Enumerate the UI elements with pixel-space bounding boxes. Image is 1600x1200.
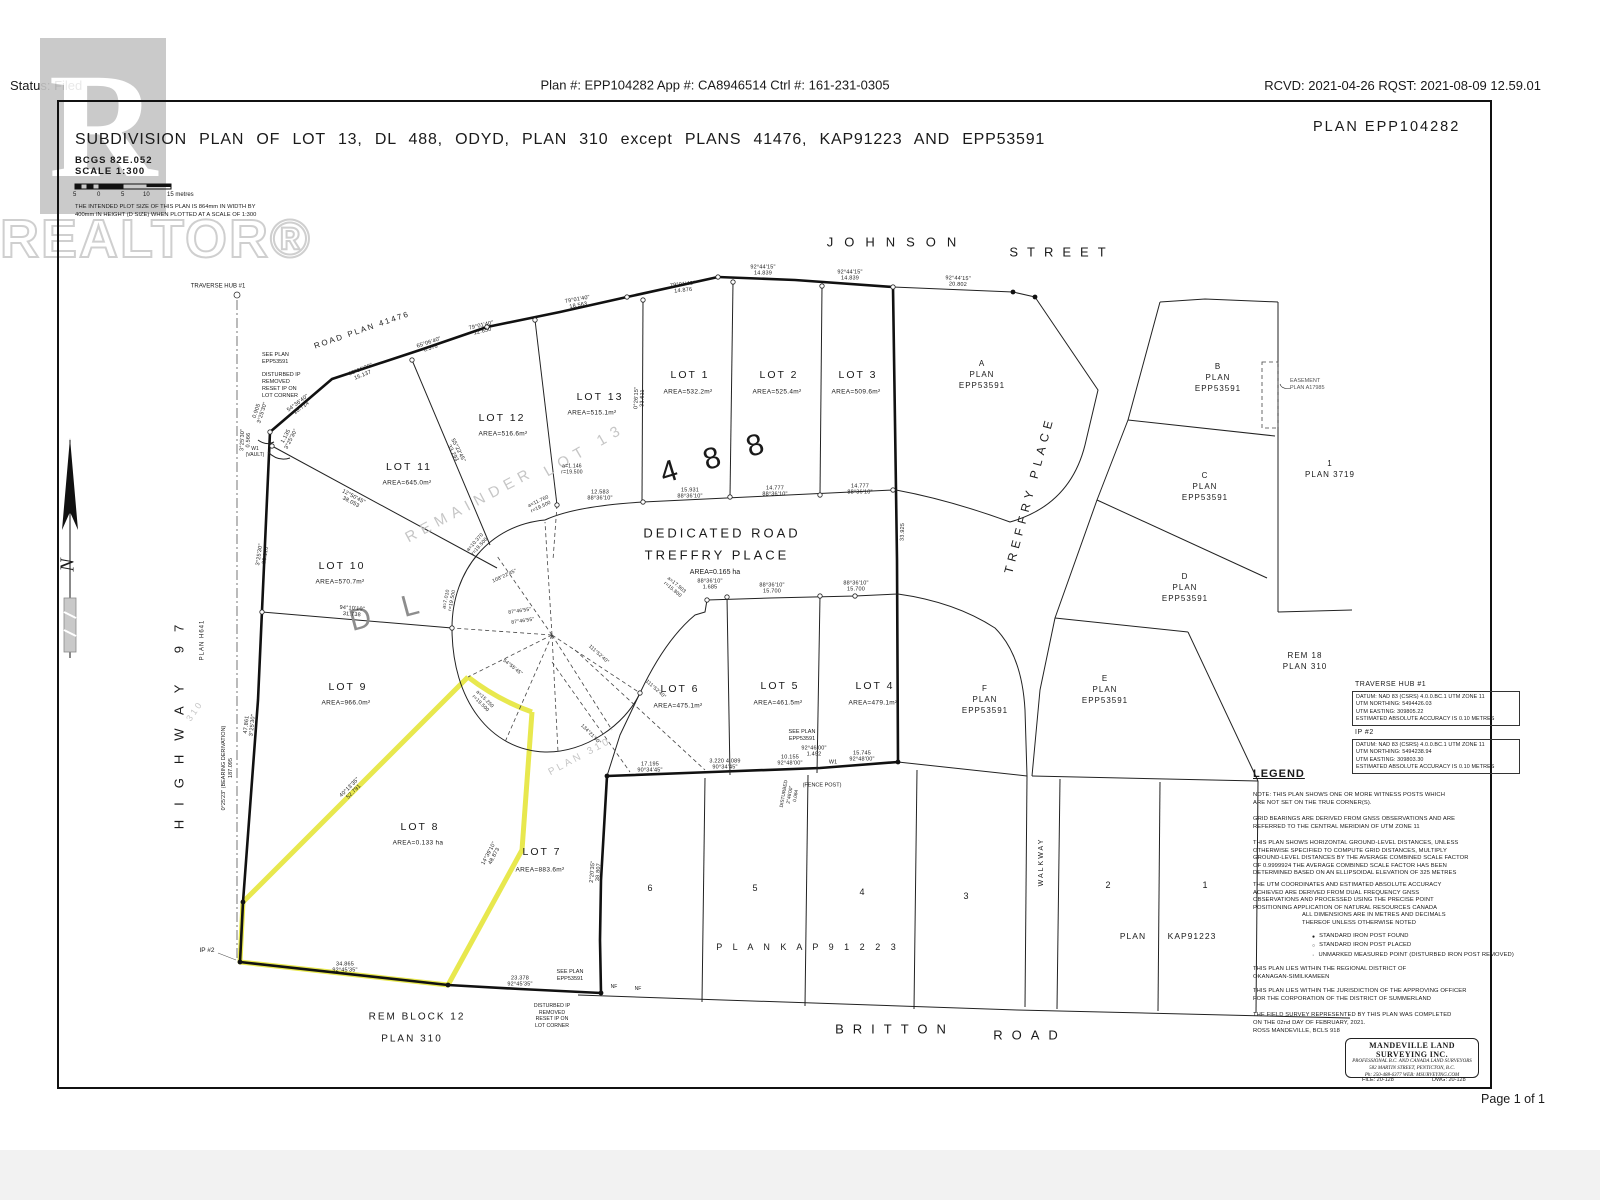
dim-label: a=1.146 r=19.500 (561, 464, 582, 476)
nf-label: NF (635, 986, 642, 992)
subject-boundary (240, 277, 898, 993)
firm-line: 582 MARTIN STREET, PENTICTON, B.C. (1346, 1066, 1478, 1073)
legend-note: THIS PLAN LIES WITHIN THE REGIONAL DISTR… (1253, 966, 1443, 981)
iron-post-placed-icon: ○ (1312, 943, 1315, 950)
lot-area: AREA=570.7m² (316, 578, 365, 585)
easement-label: EASEMENT PLAN A17985 (1290, 378, 1325, 392)
lot-area: AREA=883.6m² (516, 866, 565, 873)
kap-lot-number: 4 (859, 887, 864, 897)
ip-line: DATUM: NAD 83 (CSRS) 4.0.0.BC.1 UTM ZONE… (1356, 742, 1516, 749)
lot8-highlight (240, 677, 532, 985)
legend-symbol: ● STANDARD IRON POST FOUND (1312, 933, 1409, 941)
lot-area: AREA=479.1m² (849, 699, 898, 706)
dim-label: 15.745 92°48'00" (849, 751, 874, 764)
kap-lot-number: 3 (963, 891, 968, 901)
dim-label: 88°36'10" 1.685 (697, 579, 722, 592)
dim-label: 92°46'00" 1.492 (801, 746, 826, 759)
lot-label: LOT 12 (479, 412, 526, 424)
hub-line: UTM EASTING: 309805.22 (1356, 709, 1516, 716)
hub-line: ESTIMATED ABSOLUTE ACCURACY IS 0.10 METR… (1356, 716, 1516, 723)
dim-label: 3°25'30" 0.566 (239, 429, 252, 452)
rem-block-12: REM BLOCK 12 (369, 1011, 466, 1023)
see-plan-note: SEE PLAN EPP53591 (557, 969, 584, 983)
legend-hub-title: TRAVERSE HUB #1 (1355, 681, 1426, 689)
parcel-lines (258, 282, 1352, 1018)
dim-label: 0°26'15" 33.611 (633, 387, 646, 410)
highway-label: HIGHWAY 97 (173, 611, 188, 830)
kap-plan-spread: P L A N K A P 9 1 2 2 3 (716, 942, 899, 952)
rem-block-plan: PLAN 310 (381, 1033, 443, 1045)
surveyor-firm-box: MANDEVILLE LAND SURVEYING INC. PROFESSIO… (1345, 1038, 1479, 1078)
parcel-label: REM 18 PLAN 310 (1283, 651, 1327, 673)
lot-label: LOT 4 (856, 680, 895, 692)
legend-symbol: · UNMARKED MEASURED POINT (DISTURBED IRO… (1312, 951, 1514, 960)
surveyor-name: ROSS MANDEVILLE, BCLS 918 (1253, 1028, 1453, 1036)
north-arrow (62, 438, 78, 658)
legend-note: GRID BEARINGS ARE DERIVED FROM GNSS OBSE… (1253, 816, 1458, 831)
parcel-label: A PLAN EPP53591 (959, 359, 1005, 391)
w1-point: W1 (829, 760, 837, 767)
disturbed-note: DISTURBED IP REMOVED RESET IP ON LOT COR… (262, 372, 301, 400)
legend-note: THE UTM COORDINATES AND ESTIMATED ABSOLU… (1253, 882, 1458, 912)
legend-note: NOTE: THIS PLAN SHOWS ONE OR MORE WITNES… (1253, 792, 1458, 807)
dim-label: 14.777 88°36'10" (762, 486, 787, 499)
lot-area: AREA=0.133 ha (393, 839, 444, 846)
lot-label: LOT 5 (761, 680, 800, 692)
street-johnson-2: STREET (1009, 246, 1114, 261)
dim-label: 88°36'10" 15.700 (759, 583, 784, 596)
parcel-label: C PLAN EPP53591 (1182, 471, 1228, 503)
dim-label: 47.861 3°25'30" (243, 713, 258, 736)
unmarked-point-icon: · (1312, 951, 1314, 960)
lot-label: LOT 13 (577, 391, 624, 403)
legend-note: THE FIELD SURVEY REPRESENTED BY THIS PLA… (1253, 1012, 1453, 1027)
highway-plan-label: PLAN H641 (200, 620, 207, 661)
legend-note: THIS PLAN SHOWS HORIZONTAL GROUND-LEVEL … (1253, 840, 1475, 878)
dim-label: 10.155 92°48'00" (777, 755, 802, 768)
see-plan-note: SEE PLAN EPP53591 (789, 729, 816, 743)
ip-line: UTM NORTHING: 5494238.94 (1356, 749, 1516, 756)
scale-bar (75, 184, 171, 189)
kap-lot-number: 2 (1105, 880, 1110, 890)
dim-label: 94°10'10" 31.738 (339, 605, 365, 619)
lot-label: LOT 3 (839, 369, 878, 381)
lot-area: AREA=532.2m² (664, 388, 713, 395)
legend-ip2-title: IP #2 (1355, 729, 1374, 737)
lot-label: LOT 7 (523, 846, 562, 858)
ip2-label: IP #2 (199, 947, 214, 955)
dedicated-road-1: DEDICATED ROAD (643, 527, 800, 542)
legend-ip2-box: DATUM: NAD 83 (CSRS) 4.0.0.BC.1 UTM ZONE… (1352, 739, 1520, 774)
lot-area: AREA=966.0m² (322, 699, 371, 706)
parcel-label: B PLAN EPP53591 (1195, 362, 1241, 394)
dim-label: 33.925 (900, 523, 907, 541)
see-plan-note: SEE PLAN EPP53591 (262, 352, 289, 366)
dim-label: 92°44'15" 14.839 (837, 270, 862, 283)
legend-symbol-text: STANDARD IRON POST PLACED (1319, 942, 1411, 950)
lot-area: AREA=509.6m² (832, 388, 881, 395)
disturbed-note: DISTURBED IP REMOVED RESET IP ON LOT COR… (534, 1003, 570, 1029)
dim-label: 3.220 4.089 90°34'45" (709, 759, 740, 772)
legend-symbol-text: STANDARD IRON POST FOUND (1319, 933, 1408, 941)
legend-note: ALL DIMENSIONS ARE IN METRES AND DECIMAL… (1302, 912, 1472, 927)
firm-name: MANDEVILLE LAND SURVEYING INC. (1346, 1041, 1478, 1059)
hub-line: DATUM: NAD 83 (CSRS) 4.0.0.BC.1 UTM ZONE… (1356, 694, 1516, 701)
lot-area: AREA=525.4m² (753, 388, 802, 395)
lot-area: AREA=461.5m² (754, 699, 803, 706)
ip-line: ESTIMATED ABSOLUTE ACCURACY IS 0.10 METR… (1356, 764, 1516, 771)
lot-label: LOT 6 (661, 683, 700, 695)
lot-label: LOT 11 (386, 461, 432, 473)
kap-plan: PLAN (1120, 932, 1146, 942)
lot-label: LOT 1 (671, 369, 710, 381)
lot-area: AREA=645.0m² (383, 479, 432, 486)
kap-plan-no: KAP91223 (1168, 932, 1217, 942)
north-label: N (57, 558, 80, 571)
kap-lot-number: 6 (647, 883, 652, 893)
street-johnson: JOHNSON (827, 236, 968, 251)
dim-label: 23.378 92°45'35" (507, 976, 532, 989)
legend-note: THIS PLAN LIES WITHIN THE JURISDICTION O… (1253, 988, 1468, 1003)
parcel-label: F PLAN EPP53591 (962, 684, 1008, 716)
lot-area: AREA=515.1m² (568, 409, 617, 416)
kap-lot-number: 5 (752, 883, 757, 893)
dim-label: 88°36'10" 15.700 (843, 581, 868, 594)
dashed-lines (452, 362, 1278, 772)
dwg-number: DWG: 20-128 (1432, 1077, 1466, 1083)
dim-label: 34.865 92°45'35" (332, 962, 357, 975)
dim-label: 79°01'40" 14.876 (670, 280, 697, 295)
dim-label: 12.583 88°36'10" (587, 490, 612, 503)
legend-symbol-text: UNMARKED MEASURED POINT (DISTURBED IRON … (1318, 952, 1513, 960)
lot-label: LOT 9 (329, 681, 368, 693)
dedicated-road-area: AREA=0.165 ha (690, 569, 740, 577)
firm-line: PROFESSIONAL B.C. AND CANADA LAND SURVEY… (1346, 1059, 1478, 1066)
street-britton-2: ROAD (993, 1029, 1067, 1044)
file-number: FILE: 20-128 (1362, 1077, 1394, 1083)
dim-label: 14.777 88°36'10" (847, 484, 872, 497)
lot-label: LOT 8 (401, 821, 440, 833)
legend-title: LEGEND (1253, 768, 1305, 781)
lot-area: AREA=516.6m² (479, 430, 528, 437)
fence-post: (FENCE POST) (803, 783, 842, 790)
dim-label: 92°44'15" 20.802 (945, 275, 971, 289)
walkway-label: WALKWAY (1038, 838, 1046, 887)
parcel-label: D PLAN EPP53591 (1162, 572, 1208, 604)
ip-line: UTM EASTING: 309803.30 (1356, 757, 1516, 764)
bearing-derivation: 0°25'23" (BEARING DERIVATION) 187.095 (221, 726, 235, 811)
legend-symbol: ○ STANDARD IRON POST PLACED (1312, 942, 1411, 950)
parcel-label: E PLAN EPP53591 (1082, 674, 1128, 706)
lot-label: LOT 2 (760, 369, 799, 381)
lot-area: AREA=475.1m² (654, 702, 703, 709)
survey-plan-page: Status: Filed Plan #: EPP104282 App #: C… (0, 0, 1600, 1200)
traverse-line (218, 292, 240, 960)
dim-label: 2°20'35" 38.807 (589, 861, 603, 884)
traverse-hub-label: TRAVERSE HUB #1 (191, 283, 246, 291)
hub-line: UTM NORTHING: 5494426.03 (1356, 701, 1516, 708)
parcel-label: 1 PLAN 3719 (1305, 459, 1355, 481)
nf-label: NF (611, 984, 618, 990)
dim-label: 92°44'15" 14.839 (750, 265, 775, 278)
kap-lot-number: 1 (1202, 880, 1207, 890)
dim-label: 17.195 90°34'45" (637, 762, 662, 775)
scan-edge (0, 1150, 1600, 1200)
iron-post-found-icon: ● (1312, 934, 1315, 941)
lot-label: LOT 10 (319, 560, 366, 572)
street-britton: BRITTON (835, 1023, 955, 1038)
legend-hub-box: DATUM: NAD 83 (CSRS) 4.0.0.BC.1 UTM ZONE… (1352, 691, 1520, 726)
dim-label: 15.931 88°36'10" (677, 488, 702, 501)
dedicated-road-2: TREFFRY PLACE (645, 549, 790, 564)
